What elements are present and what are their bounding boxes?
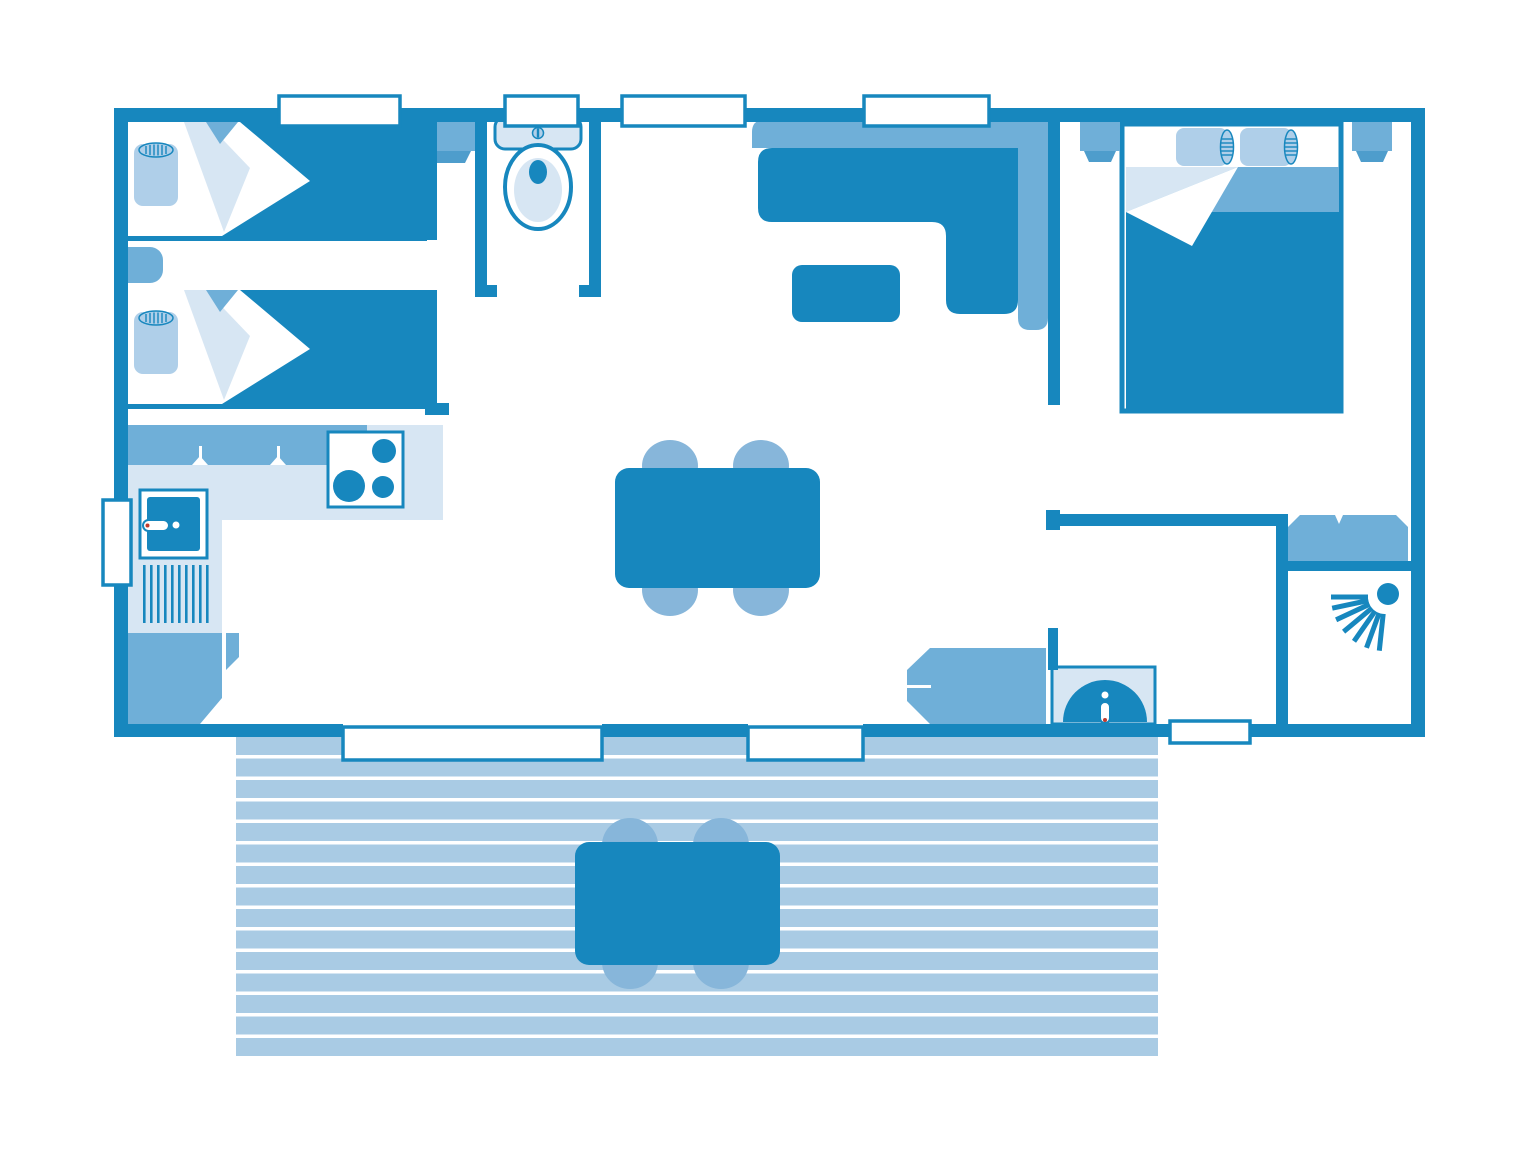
pillow	[1240, 128, 1298, 166]
wall-jamb	[475, 285, 497, 297]
wc	[495, 117, 581, 229]
base-cabinet-wing	[226, 633, 239, 670]
wall-bedroom-bottom	[1048, 514, 1284, 526]
wall-twinroom-upper	[425, 122, 437, 240]
wall-wc-left	[475, 122, 487, 285]
wall-right	[1411, 108, 1425, 737]
window-top-1	[279, 96, 400, 126]
bed-frame-line	[128, 236, 427, 241]
window-top-wc	[505, 96, 578, 126]
pillow	[1176, 128, 1234, 166]
dining-set	[615, 440, 820, 616]
window-top-2	[622, 96, 745, 126]
living-room	[615, 120, 1048, 616]
terrace-door-1	[343, 727, 602, 760]
dresser-seam	[907, 685, 931, 688]
window-left	[103, 500, 131, 585]
shower-room	[1288, 515, 1411, 651]
kitchen	[128, 425, 443, 724]
faucet-knob	[172, 521, 181, 530]
wall-left	[114, 108, 128, 737]
shower-partition	[1288, 561, 1411, 571]
single-bed-2	[128, 290, 427, 409]
wall-stub-basin	[1048, 628, 1058, 670]
burner	[372, 476, 394, 498]
wall-jamb	[579, 285, 601, 297]
twin-bedroom	[128, 122, 427, 409]
bed-frame-line	[128, 404, 427, 409]
wall-jamb	[413, 228, 437, 240]
wall-twinroom-lower	[425, 290, 437, 415]
wall-wc-right	[589, 122, 601, 285]
wall-endcap	[1046, 510, 1060, 530]
wall-bottom-seg	[114, 724, 343, 737]
hob	[328, 432, 403, 507]
shower-head	[1377, 583, 1399, 605]
nightstand-right	[1352, 122, 1392, 162]
base-cabinet	[128, 633, 222, 724]
wall-bedroom-left	[1048, 122, 1060, 405]
outdoor-table	[575, 842, 780, 965]
vanity-unit	[1288, 515, 1408, 561]
kitchen-sink	[140, 490, 207, 558]
nightstand	[128, 247, 163, 283]
toilet-drain	[529, 160, 547, 184]
floorplan-svg	[0, 0, 1536, 1152]
outdoor-dining-set	[575, 818, 780, 989]
double-bed	[1122, 124, 1341, 411]
hallway	[907, 648, 1155, 724]
shower-icon	[1331, 583, 1399, 651]
wall-jamb	[413, 290, 437, 302]
wall-shower-left	[1276, 514, 1288, 737]
window-top-3	[864, 96, 989, 126]
floorplan-canvas	[0, 0, 1536, 1152]
dining-table	[615, 468, 820, 588]
nightstand-left	[1080, 122, 1120, 162]
burner	[333, 470, 365, 502]
washbasin	[1052, 667, 1155, 724]
wall-jamb	[425, 403, 449, 415]
flush-slot	[537, 129, 539, 138]
window-bottom-shower	[1170, 721, 1250, 743]
terrace	[236, 737, 1158, 1057]
duvet	[1126, 212, 1339, 409]
single-bed-1	[128, 122, 427, 241]
faucet-hot-dot	[146, 524, 150, 528]
wall-bottom-seg	[863, 724, 1170, 737]
terrace-door-2	[748, 727, 863, 760]
wall-bottom-seg	[602, 724, 748, 737]
pillow	[134, 311, 178, 374]
pillow	[134, 143, 178, 206]
basin-hot-dot	[1103, 718, 1107, 722]
burner	[372, 439, 396, 463]
double-bedroom	[1080, 122, 1392, 411]
basin-knob	[1101, 691, 1110, 700]
coffee-table	[792, 265, 900, 322]
toilet	[495, 117, 581, 229]
